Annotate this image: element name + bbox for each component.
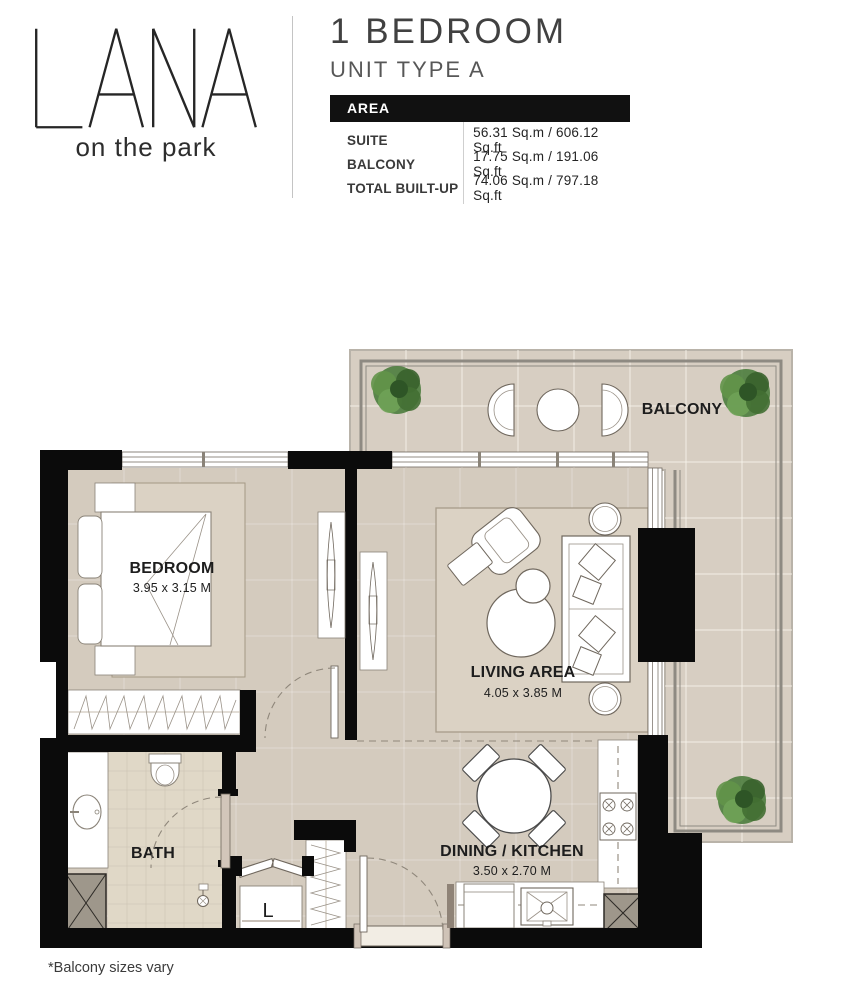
dining-table — [477, 759, 551, 833]
nightstand — [95, 483, 135, 512]
shaft — [604, 894, 642, 932]
bedroom-window — [122, 452, 288, 467]
bedroom-tv-unit — [318, 512, 345, 638]
dining-kitchen-label: DINING / KITCHEN — [440, 843, 584, 860]
dining-kitchen-dimensions: 3.50 x 2.70 M — [473, 864, 551, 878]
living-area-label: LIVING AREA — [471, 664, 576, 681]
living-window — [392, 452, 648, 467]
floor-plan: BALCONY — [0, 0, 866, 1000]
nightstand — [95, 646, 135, 675]
living-tv-unit — [360, 552, 387, 670]
wardrobe — [68, 690, 240, 734]
door-jamb — [447, 884, 454, 928]
footnote: *Balcony sizes vary — [48, 960, 174, 976]
fridge — [464, 884, 514, 928]
living-area-dimensions: 4.05 x 3.85 M — [484, 686, 562, 700]
sofa — [562, 536, 630, 682]
tv-wall — [638, 528, 695, 662]
laundry-label: L — [262, 900, 273, 922]
balcony-furniture — [488, 384, 628, 436]
side-table — [589, 683, 621, 715]
balcony-label: BALCONY — [642, 401, 723, 418]
side-table — [589, 503, 621, 535]
brochure-page: on the park 1 BEDROOM UNIT TYPE A AREA S… — [0, 0, 866, 1000]
bath: BATH — [66, 752, 222, 932]
living-area: LIVING AREA 4.05 x 3.85 M — [436, 503, 648, 732]
coat-closet — [306, 840, 346, 930]
pillow — [78, 584, 102, 644]
wall-niche — [40, 662, 56, 738]
bedroom-dimensions: 3.95 x 3.15 M — [133, 581, 211, 595]
bedroom-label: BEDROOM — [130, 560, 215, 577]
kitchen-sink — [521, 888, 573, 926]
laundry-closet: L — [240, 886, 302, 930]
bedroom: BEDROOM 3.95 x 3.15 M — [78, 483, 245, 677]
coffee-table-small — [516, 569, 550, 603]
shaft — [66, 874, 106, 932]
pillow — [78, 516, 102, 578]
stove — [600, 793, 636, 840]
coffee-table — [487, 589, 555, 657]
